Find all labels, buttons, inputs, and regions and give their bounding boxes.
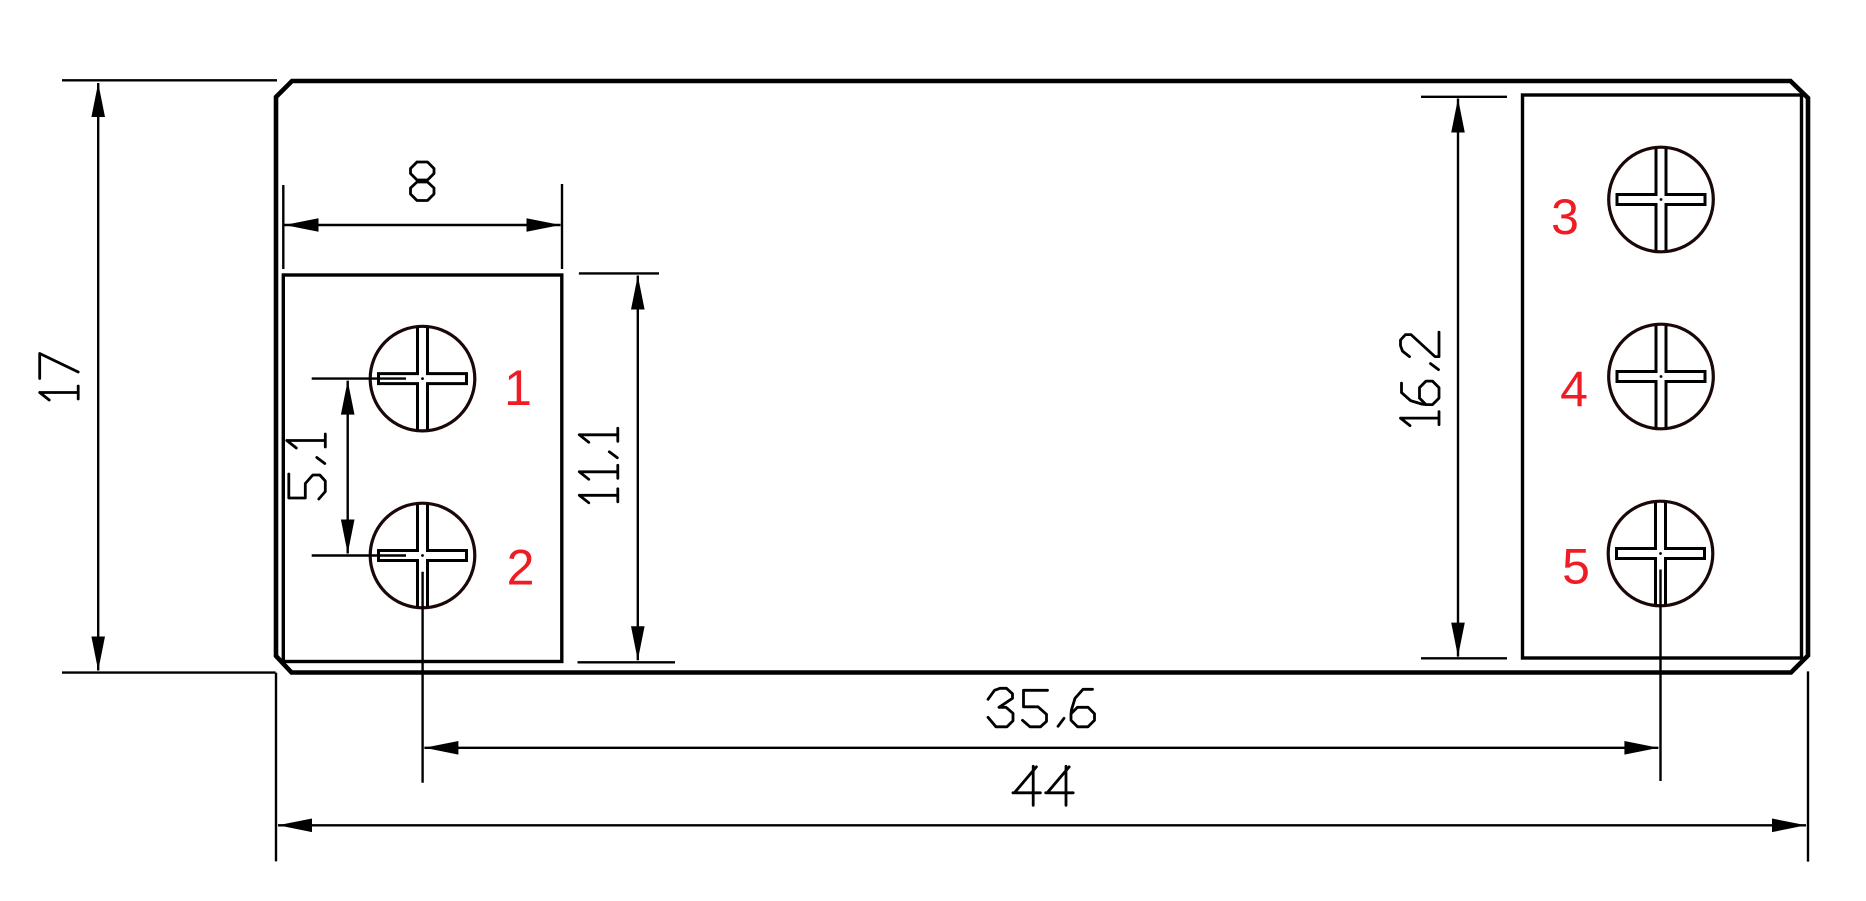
- svg-text:5: 5: [1562, 539, 1590, 595]
- svg-text:3: 3: [1551, 189, 1579, 245]
- svg-text:2: 2: [507, 540, 535, 596]
- svg-text:1: 1: [504, 360, 532, 416]
- svg-text:4: 4: [1560, 362, 1588, 418]
